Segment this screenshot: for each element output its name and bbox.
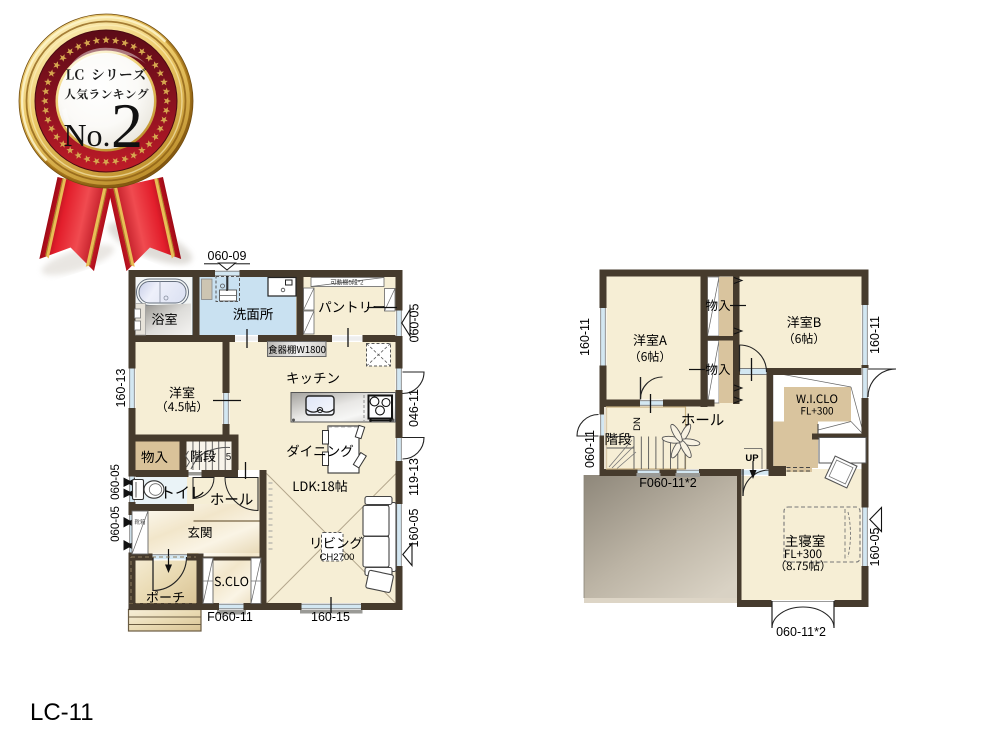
svg-text:160-11: 160-11 <box>868 316 882 354</box>
svg-text:靴箱: 靴箱 <box>134 518 146 526</box>
svg-text:119-13: 119-13 <box>407 458 421 496</box>
svg-text:LC-11: LC-11 <box>30 699 94 726</box>
svg-text:UP: UP <box>745 453 759 464</box>
svg-text:5: 5 <box>226 452 232 463</box>
svg-text:No.: No. <box>63 117 110 153</box>
svg-text:CH2700: CH2700 <box>320 552 355 563</box>
svg-text:046-11: 046-11 <box>407 389 421 427</box>
svg-text:060-05: 060-05 <box>408 303 422 342</box>
svg-text:160-11: 160-11 <box>578 318 592 356</box>
svg-text:060-09: 060-09 <box>208 249 247 263</box>
svg-text:060-05: 060-05 <box>110 464 122 500</box>
svg-text:F060-11: F060-11 <box>207 610 253 624</box>
svg-text:160-05: 160-05 <box>407 508 421 547</box>
svg-text:F060-11*2: F060-11*2 <box>639 476 696 490</box>
svg-text:160-05: 160-05 <box>868 527 882 566</box>
svg-text:可動棚5段*2: 可動棚5段*2 <box>330 279 364 287</box>
svg-text:DN: DN <box>632 417 643 431</box>
svg-text:160-13: 160-13 <box>114 368 128 407</box>
svg-text:060-11: 060-11 <box>583 430 597 468</box>
svg-text:160-15: 160-15 <box>311 610 350 624</box>
svg-text:2: 2 <box>111 90 143 161</box>
svg-text:060-11*2: 060-11*2 <box>776 625 826 639</box>
svg-text:060-05: 060-05 <box>110 506 122 542</box>
